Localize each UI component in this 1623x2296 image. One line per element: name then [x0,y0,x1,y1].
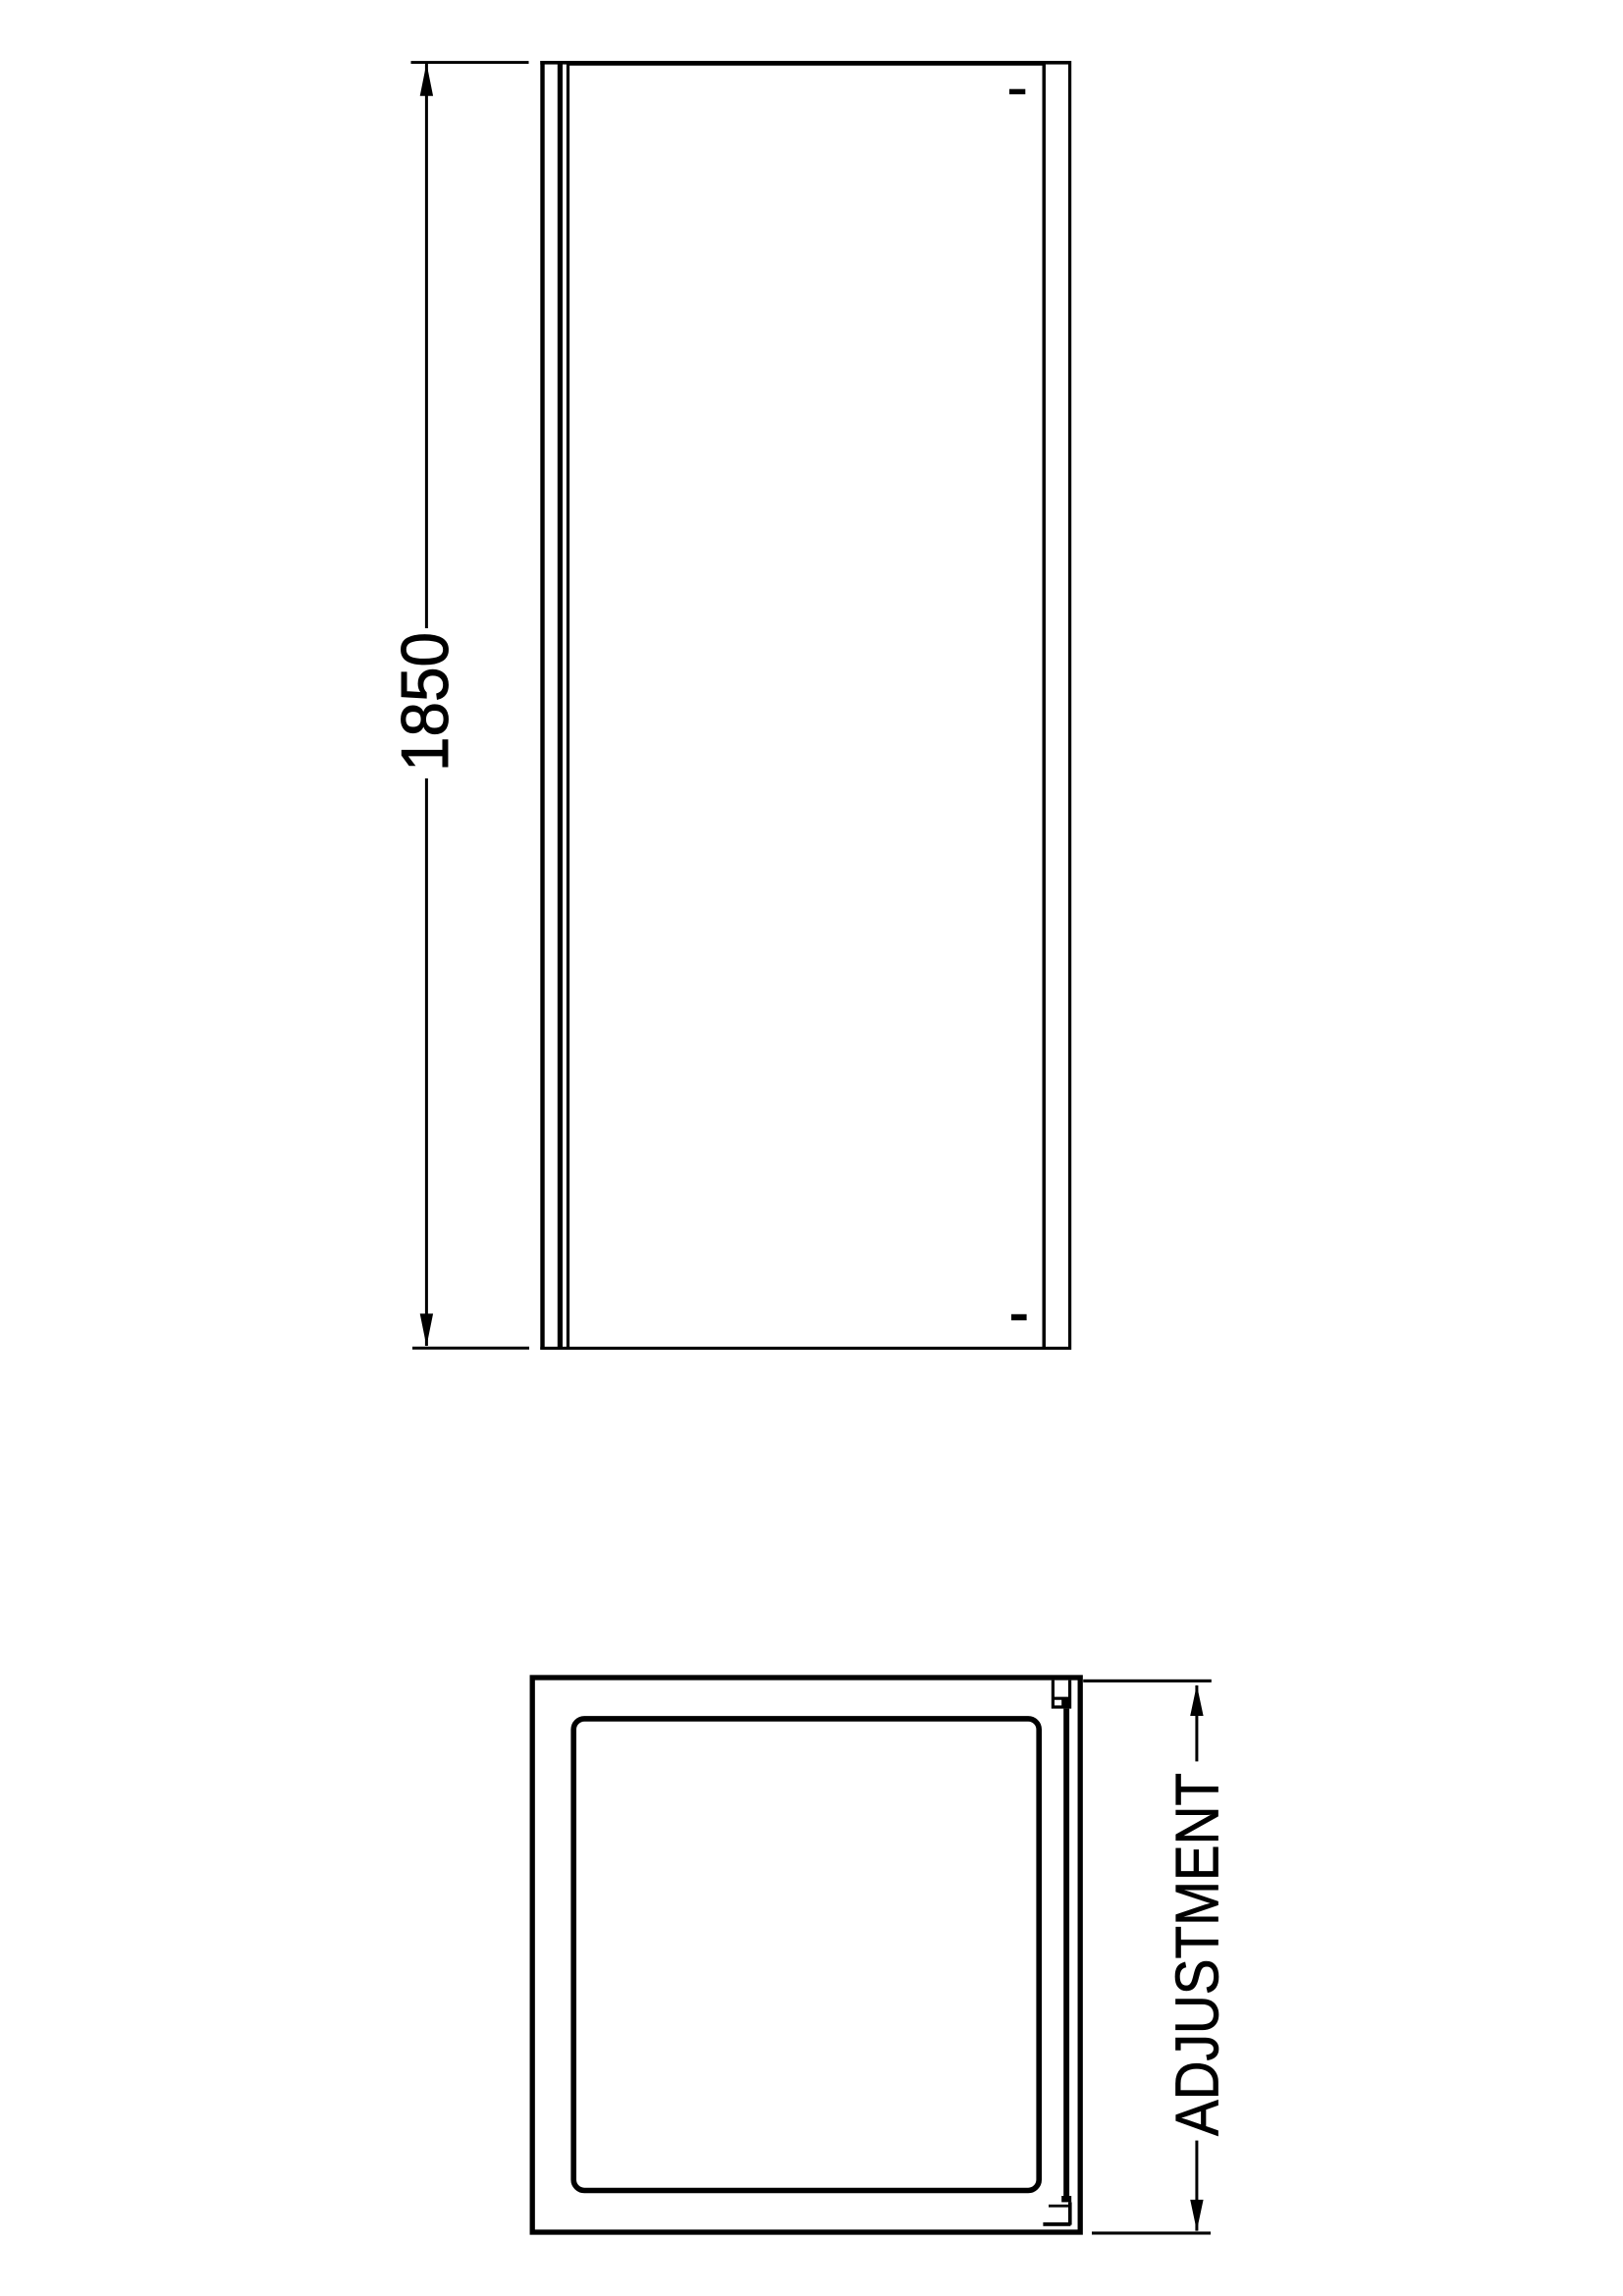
svg-text:1850: 1850 [388,632,462,772]
svg-text:ADJUSTMENT: ADJUSTMENT [1164,1773,1232,2136]
